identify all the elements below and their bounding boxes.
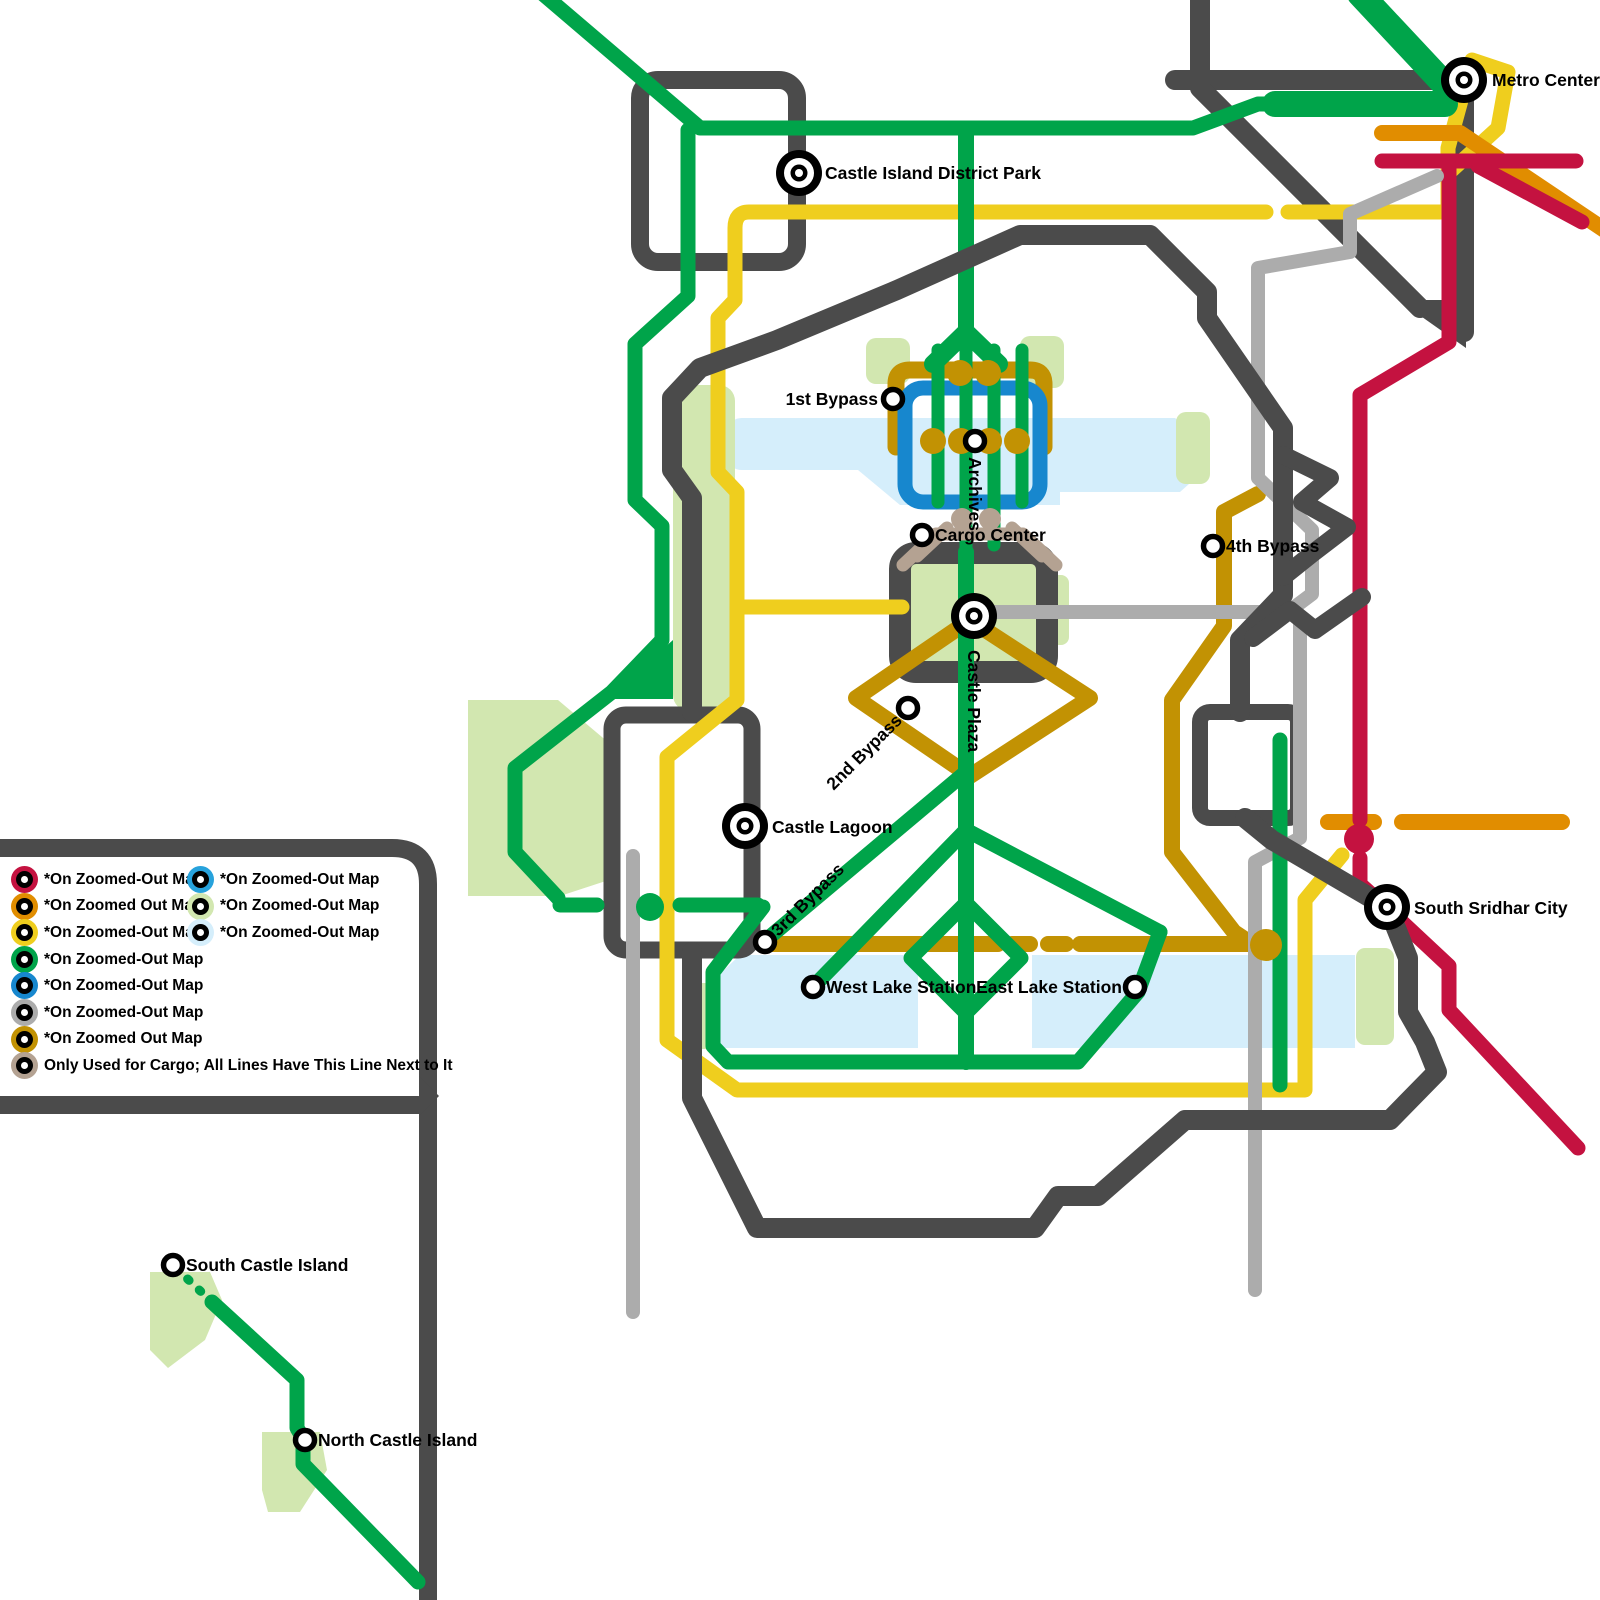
station-label-cargo-center: Cargo Center (935, 525, 1046, 545)
station-label-second-bypass: 2nd Bypass (822, 710, 906, 794)
station-label-east-lake-station: East Lake Station (976, 977, 1122, 997)
yellow-line (667, 60, 1508, 1090)
park-east-strip (1176, 412, 1210, 484)
station-marker-south-castle-island (164, 1256, 183, 1275)
station-marker-cargo-center (913, 526, 932, 545)
transit-map-canvas: { "colors": { "crimson": "#C41240", "ora… (0, 0, 1600, 1600)
station-marker-first-bypass (884, 390, 903, 409)
gold-end-dot (1250, 929, 1282, 961)
gold-dot (1004, 428, 1030, 454)
transit-map: Metro CenterCastle Island District Park1… (0, 0, 1600, 1600)
gold-dot (947, 360, 973, 386)
green-line (176, 0, 1448, 1582)
station-label-south-castle-island: South Castle Island (186, 1255, 348, 1275)
station-marker-archives (966, 432, 985, 451)
station-label-archives: Archives (965, 457, 985, 531)
station-marker-north-castle-island (296, 1431, 315, 1450)
station-label-castle-plaza: Castle Plaza (964, 650, 984, 752)
station-label-metro-center: Metro Center (1492, 70, 1600, 90)
station-label-west-lake-station: West Lake Station (826, 977, 976, 997)
station-marker-south-sridhar-city (1364, 884, 1410, 930)
park-south-island (150, 1272, 222, 1368)
station-label-fourth-bypass: 4th Bypass (1226, 536, 1320, 556)
station-marker-fourth-bypass (1204, 537, 1223, 556)
park-eastlake-right (1356, 948, 1394, 1045)
station-marker-third-bypass (756, 933, 775, 952)
crimson-dot (1344, 824, 1374, 854)
district-park-box (640, 80, 797, 262)
gold-dot (920, 428, 946, 454)
legend-inset-border (0, 848, 428, 1600)
station-marker-second-bypass (899, 699, 918, 718)
station-label-south-sridhar-city: South Sridhar City (1414, 898, 1568, 918)
station-marker-metro-center (1441, 57, 1487, 103)
station-label-third-bypass: 3rd Bypass (767, 859, 848, 940)
station-marker-west-lake-station (804, 978, 823, 997)
station-marker-castle-island-district-park (776, 150, 822, 196)
green-lagoon-dot (636, 893, 664, 921)
station-marker-castle-lagoon (722, 803, 768, 849)
station-marker-east-lake-station (1126, 978, 1145, 997)
station-label-first-bypass: 1st Bypass (786, 389, 879, 409)
station-label-castle-lagoon: Castle Lagoon (772, 817, 893, 837)
station-label-north-castle-island: North Castle Island (318, 1430, 477, 1450)
station-marker-castle-plaza (951, 593, 997, 639)
water-west-lake (705, 955, 918, 1048)
park-lagoon-west (468, 700, 615, 896)
station-label-castle-island-district-park: Castle Island District Park (825, 163, 1041, 183)
gold-dot (975, 360, 1001, 386)
